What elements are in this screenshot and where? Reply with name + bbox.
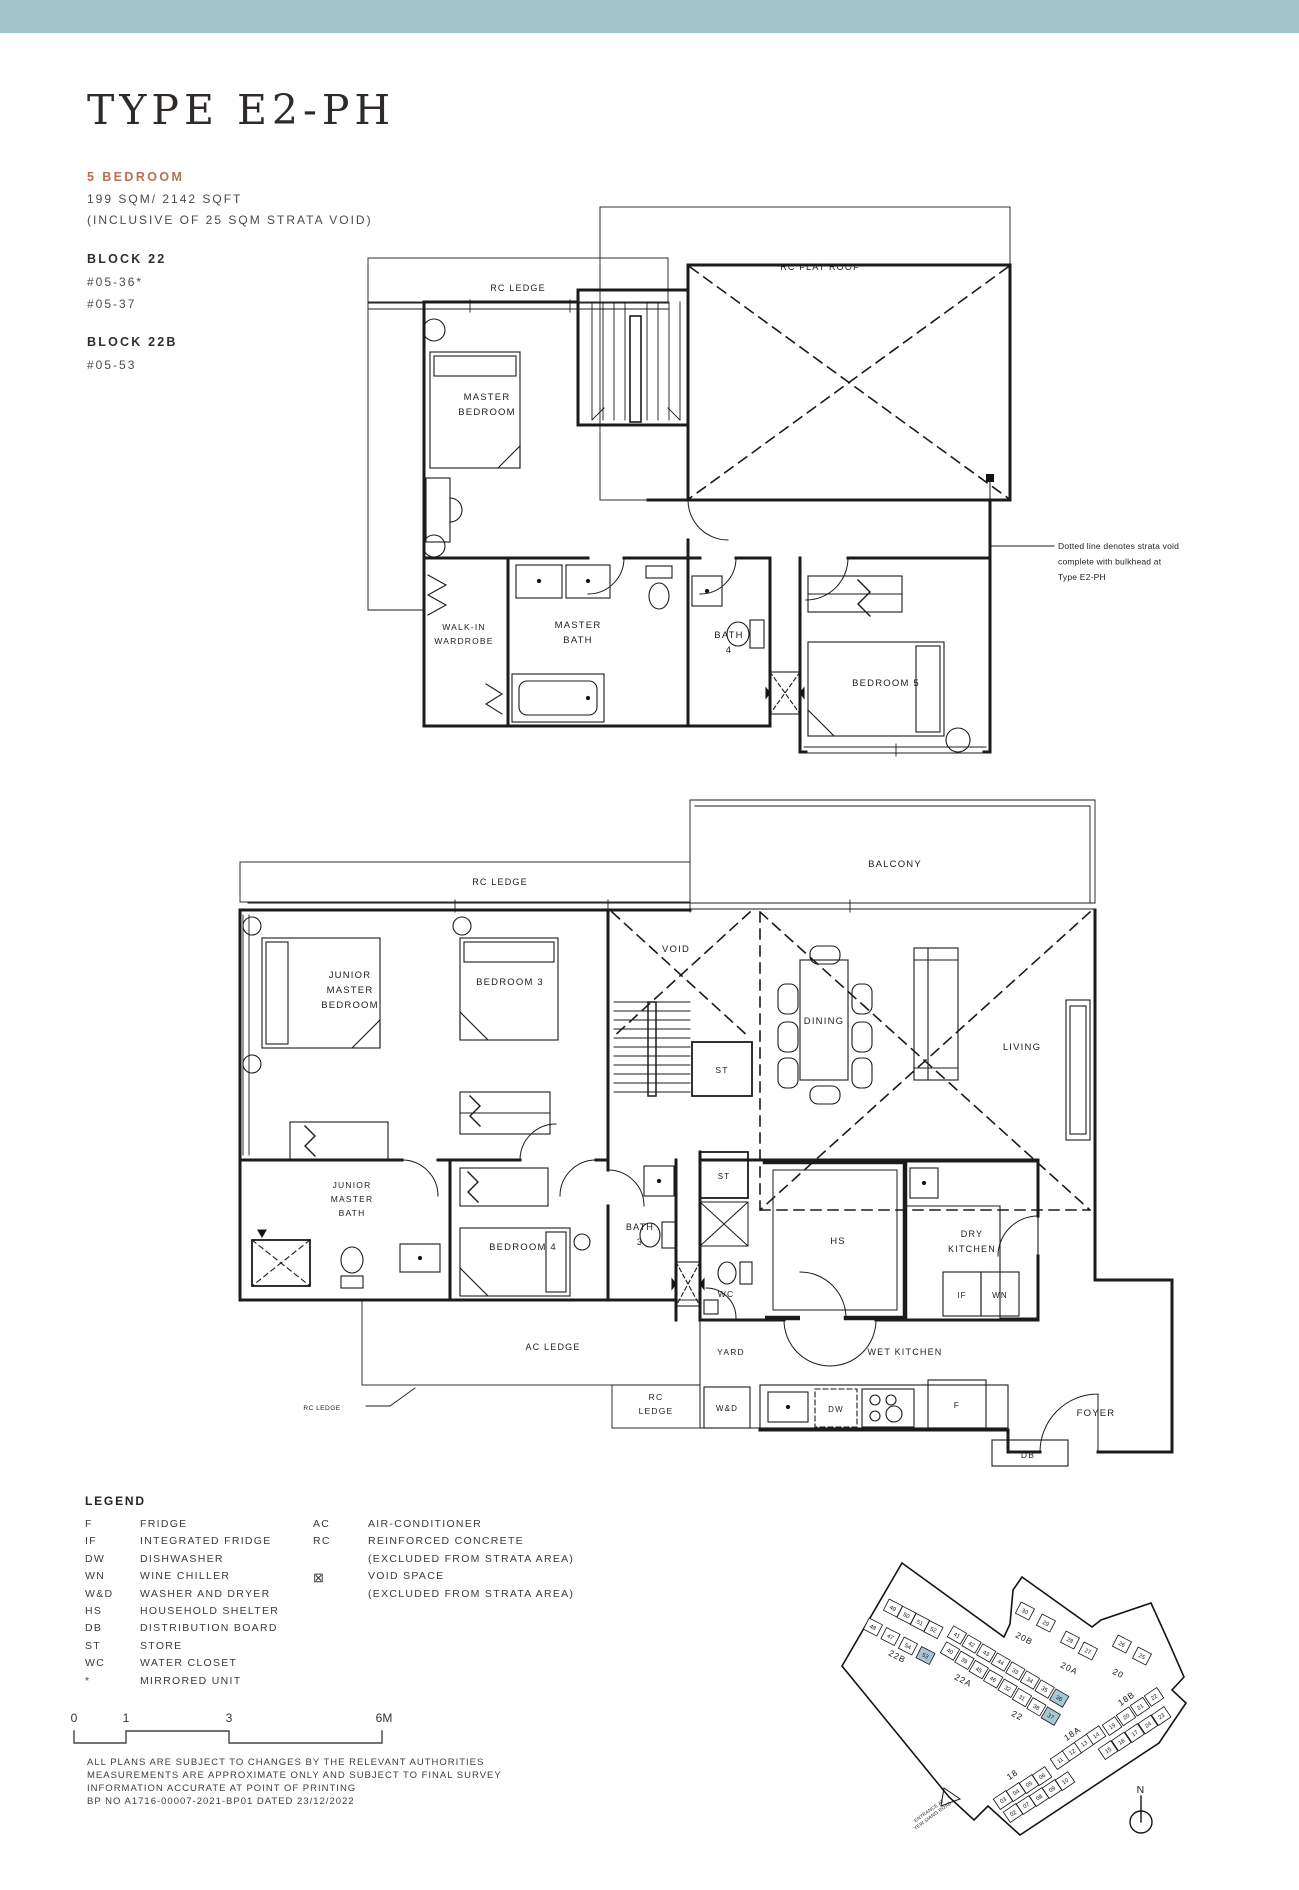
kitchen-walls (700, 1160, 1038, 1320)
strata-void-leader (986, 474, 1054, 546)
wd-label: W&D (716, 1404, 738, 1413)
door-arc (588, 558, 624, 594)
door-arc (688, 500, 728, 540)
wardrobe-rail (428, 575, 446, 615)
site-block-label-20B: 20B (1014, 1630, 1035, 1647)
balcony-outline (690, 800, 1095, 903)
master-bath-toilet (646, 566, 672, 609)
living-label: LIVING (1003, 1042, 1041, 1053)
site-unit-28: 28 (1060, 1631, 1079, 1649)
callout-leader (366, 1388, 415, 1406)
disclaimer-line: ALL PLANS ARE SUBJECT TO CHANGES BY THE … (87, 1756, 502, 1769)
legend-desc: INTEGRATED FRIDGE (140, 1535, 272, 1547)
bedroom3-bed (460, 938, 558, 1040)
site-unit-37: 37 (1041, 1707, 1060, 1725)
hs-label: HS (830, 1236, 846, 1247)
strata-void-walls (648, 265, 1010, 500)
lower-rc-ledge-label: RC LEDGE (472, 877, 528, 887)
db-label: DB (1021, 1450, 1035, 1460)
legend-desc: (EXCLUDED FROM STRATA AREA) (368, 1553, 574, 1565)
master-bath-label: MASTERBATH (555, 620, 602, 646)
disclaimer: ALL PLANS ARE SUBJECT TO CHANGES BY THE … (87, 1756, 502, 1808)
legend-desc: REINFORCED CONCRETE (368, 1535, 524, 1547)
fridge-label: F (954, 1400, 960, 1410)
entry-door-arc (1040, 1394, 1098, 1452)
disclaimer-line: MEASUREMENTS ARE APPROXIMATE ONLY AND SU… (87, 1769, 502, 1782)
upper-floor-plan (368, 207, 1054, 756)
junior-wardrobe (290, 1122, 388, 1160)
site-unit-30: 30 (1015, 1602, 1034, 1620)
upper-stairs (592, 302, 680, 422)
scale-bar (74, 1731, 382, 1743)
bath-4-label: BATH4 (714, 630, 743, 656)
wall (760, 910, 1172, 1452)
site-unit-29: 29 (1036, 1614, 1055, 1632)
site-unit-48: 48 (863, 1618, 882, 1636)
dressing-desk (426, 478, 462, 542)
site-unit-35: 35 (1035, 1680, 1054, 1698)
wall (508, 558, 770, 726)
legend-abbr: IF (85, 1535, 97, 1547)
scale-tick-0: 0 (71, 1711, 78, 1725)
door-arc-half (784, 1320, 876, 1366)
site-unit-40: 40 (940, 1642, 959, 1660)
upper-left-strip (368, 302, 424, 610)
rc-ledge-outline-2 (240, 862, 690, 902)
disclaimer-line: BP NO A1716-00007-2021-BP01 DATED 23/12/… (87, 1795, 502, 1808)
junior-master-bath-label: JUNIORMASTERBATH (331, 1180, 374, 1218)
site-unit-44: 44 (991, 1653, 1010, 1671)
legend-desc: WINE CHILLER (140, 1570, 230, 1582)
site-unit-53: 53 (916, 1647, 935, 1665)
void-space-icon: ⊠ (313, 1570, 324, 1586)
site-unit-39: 39 (955, 1651, 974, 1669)
legend-desc: VOID SPACE (368, 1570, 444, 1582)
bedroom5-bed (808, 642, 944, 736)
site-unit-47: 47 (881, 1628, 900, 1646)
site-unit-32: 32 (998, 1679, 1017, 1697)
legend-abbr: F (85, 1518, 93, 1530)
yard-label: YARD (717, 1347, 745, 1357)
balcony-label: BALCONY (868, 859, 922, 870)
rc-ledge-outline (368, 258, 668, 302)
legend-desc: AIR-CONDITIONER (368, 1518, 482, 1530)
upper-rc-flat-roof-label: RC FLAT ROOF (780, 262, 860, 272)
strata-void-cross (690, 267, 1008, 498)
scale-tick-6M: 6M (376, 1711, 393, 1725)
legend-abbr: * (85, 1675, 90, 1687)
bathtub (512, 674, 604, 722)
legend: LEGEND FFRIDGEIFINTEGRATED FRIDGEDWDISHW… (85, 1494, 146, 1508)
site-unit-43: 43 (977, 1644, 996, 1662)
site-block-label-20A: 20A (1059, 1660, 1080, 1677)
door-arc (608, 1170, 644, 1206)
bath3-fixtures (640, 1166, 676, 1248)
strata-void-note: Dotted line denotes strata voidcomplete … (1058, 541, 1179, 582)
disclaimer-line: INFORMATION ACCURATE AT POINT OF PRINTIN… (87, 1782, 502, 1795)
legend-desc: HOUSEHOLD SHELTER (140, 1605, 279, 1617)
wn-label: WN (992, 1291, 1008, 1300)
wc-label: WC (718, 1289, 735, 1299)
column (243, 917, 261, 935)
bedroom-4-label: BEDROOM 4 (489, 1242, 557, 1253)
legend-abbr: AC (313, 1518, 330, 1530)
dw-label: DW (828, 1405, 844, 1414)
north-indicator (1130, 1796, 1152, 1833)
legend-abbr: DB (85, 1622, 102, 1634)
store-2-label: ST (718, 1172, 731, 1181)
wet-kitchen-counter (760, 1380, 1008, 1428)
entrance-label: ENTRANCE ATYEW SIANG ROAD (909, 1795, 953, 1831)
site-unit-38: 38 (1027, 1698, 1046, 1716)
stair-core-walls (578, 290, 688, 425)
wet-kitchen-label: WET KITCHEN (867, 1347, 942, 1357)
stair-store-label: ST (715, 1065, 728, 1075)
site-unit-46: 46 (984, 1670, 1003, 1688)
legend-abbr: W&D (85, 1588, 113, 1600)
legend-desc: DISHWASHER (140, 1553, 224, 1565)
legend-desc: WASHER AND DRYER (140, 1588, 271, 1600)
column (453, 917, 471, 935)
junior-bath-fixtures (252, 1230, 440, 1288)
walk-in-wardrobe-label: WALK-INWARDROBE (434, 622, 493, 646)
legend-title: LEGEND (85, 1494, 146, 1508)
wall (424, 302, 770, 726)
master-bedroom-label: MASTERBEDROOM (458, 392, 516, 418)
side-table (946, 728, 970, 752)
site-unit-25: 25 (1132, 1647, 1151, 1665)
bedroom-3-label: BEDROOM 3 (476, 977, 544, 988)
rc-ledge-2-label: RCLEDGE (639, 1392, 674, 1416)
wall (240, 910, 450, 1300)
legend-desc: (EXCLUDED FROM STRATA AREA) (368, 1588, 574, 1600)
legend-desc: WATER CLOSET (140, 1657, 237, 1669)
door-arc (998, 1216, 1038, 1256)
scale-tick-1: 1 (123, 1711, 130, 1725)
dining-label: DINING (804, 1016, 844, 1027)
dry-kitchen-counter (905, 1162, 1038, 1318)
site-unit-26: 26 (1112, 1635, 1131, 1653)
site-unit-41: 41 (947, 1626, 966, 1644)
site-unit-33: 33 (1006, 1662, 1025, 1680)
ac-ledge-label: AC LEDGE (525, 1342, 580, 1352)
legend-abbr: WC (85, 1657, 105, 1669)
if-label: IF (957, 1291, 967, 1300)
sofa (914, 948, 958, 1080)
scale-ticks: 0136M (71, 1711, 393, 1725)
legend-abbr: DW (85, 1553, 105, 1565)
tv-console (1066, 1000, 1090, 1140)
legend-desc: MIRRORED UNIT (140, 1675, 241, 1687)
duct-box (766, 672, 804, 714)
junior-master-bedroom-label: JUNIORMASTERBEDROOM (321, 970, 379, 1011)
scale-tick-3: 3 (226, 1711, 233, 1725)
door-arc (560, 1160, 596, 1196)
upper-rc-ledge-label: RC LEDGE (490, 283, 546, 293)
site-unit-42: 42 (962, 1635, 981, 1653)
door-arc (800, 1272, 846, 1318)
site-plan: 4950515248475453414243443334353640394546… (842, 1563, 1186, 1835)
rc-flat-roof-outline (600, 207, 1010, 500)
void-cross-small (612, 912, 750, 1038)
dry-kitchen-label: DRYKITCHEN (948, 1229, 996, 1254)
site-unit-27: 27 (1078, 1642, 1097, 1660)
legend-abbr: ST (85, 1640, 101, 1652)
rc-ledge-callout: RC LEDGE (303, 1405, 340, 1412)
site-block-label-22: 22 (1010, 1708, 1025, 1722)
left-window (243, 915, 249, 1155)
site-block-label-20: 20 (1111, 1666, 1126, 1680)
wall (450, 1160, 608, 1300)
bedroom3-wardrobe (460, 1092, 550, 1134)
foyer-label: FOYER (1077, 1408, 1116, 1419)
legend-desc: FRIDGE (140, 1518, 187, 1530)
column (423, 319, 445, 341)
bedroom5-walls (800, 500, 990, 752)
north-label: N (1137, 1784, 1146, 1796)
door-arc (402, 1160, 438, 1196)
site-unit-45: 45 (969, 1660, 988, 1678)
column (243, 1055, 261, 1073)
legend-abbr: RC (313, 1535, 331, 1547)
wardrobe-rail (486, 684, 502, 714)
lower-stairs (614, 1002, 690, 1096)
site-block-label-22A: 22A (953, 1672, 974, 1689)
site-unit-31: 31 (1012, 1688, 1031, 1706)
site-unit-34: 34 (1020, 1671, 1039, 1689)
bedroom5-wardrobe (808, 576, 902, 616)
void-duct-box (700, 1202, 748, 1246)
site-unit-36: 36 (1050, 1689, 1069, 1707)
legend-desc: DISTRIBUTION BOARD (140, 1622, 278, 1634)
door-arc (520, 1124, 556, 1160)
legend-abbr: HS (85, 1605, 102, 1617)
bedroom-5-label: BEDROOM 5 (852, 678, 920, 689)
legend-desc: STORE (140, 1640, 182, 1652)
site-block-label-18: 18 (1005, 1767, 1020, 1782)
lower-floor-plan (240, 800, 1172, 1466)
legend-abbr: WN (85, 1570, 105, 1582)
bedroom4-furniture (460, 1168, 590, 1296)
floor-plan-page: TYPE E2-PH 5 BEDROOM 199 SQM/ 2142 SQFT … (0, 0, 1299, 1890)
wall (608, 910, 676, 1320)
bedroom5-window (804, 744, 986, 756)
void-label: VOID (662, 944, 690, 955)
